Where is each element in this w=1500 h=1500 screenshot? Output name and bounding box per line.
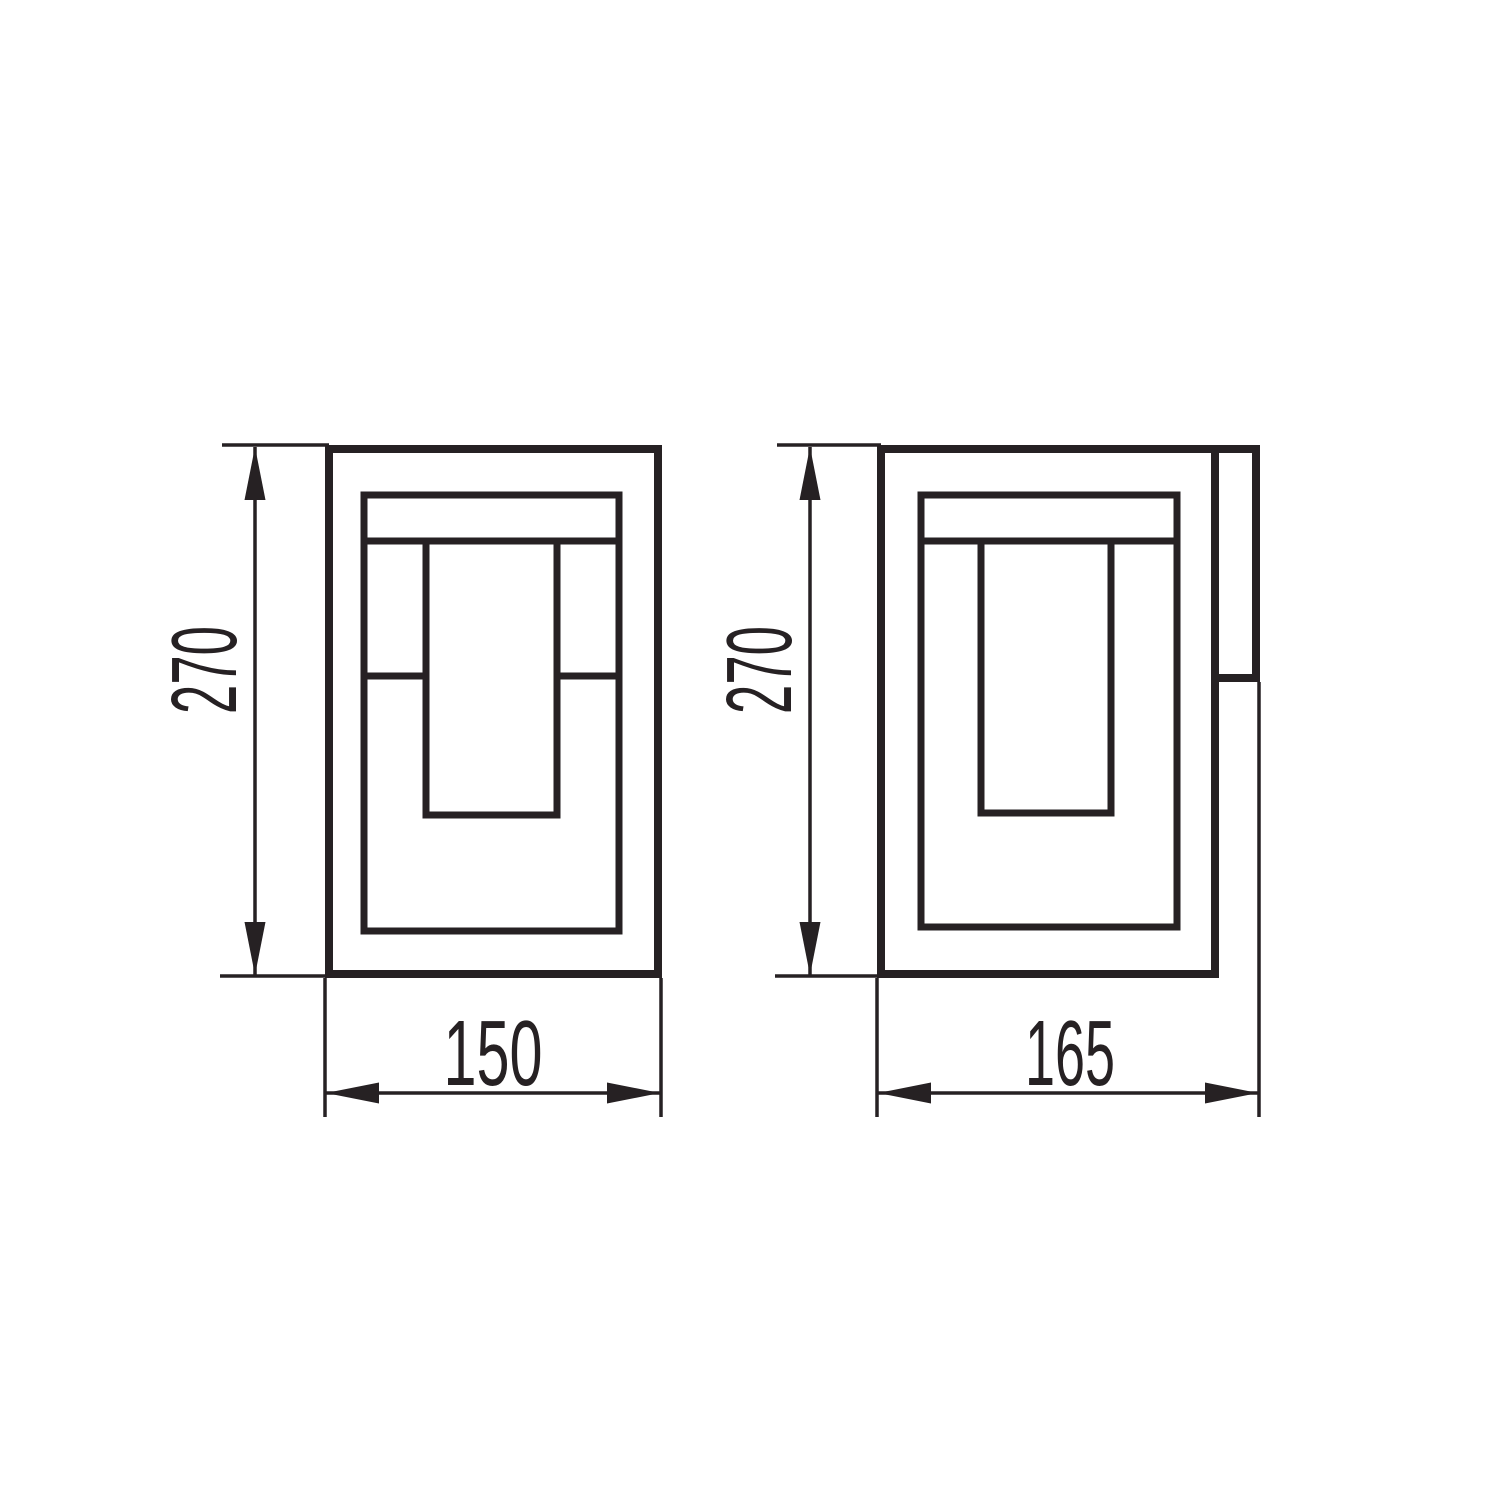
- front-outer-frame: [329, 449, 658, 974]
- side-lamp-chamber: [981, 541, 1111, 813]
- side-view: [881, 449, 1256, 974]
- side-outer-frame: [881, 449, 1215, 974]
- dimension-diagram: 270 150 270: [0, 0, 1500, 1500]
- side-height-dimension: 270: [707, 445, 886, 976]
- front-view: [329, 449, 658, 974]
- drawing-canvas: 270 150 270: [0, 0, 1500, 1500]
- side-inner-frame: [921, 495, 1177, 927]
- front-inner-frame: [364, 495, 619, 931]
- arrow-up-icon: [245, 447, 266, 500]
- arrow-down-icon: [800, 922, 821, 975]
- front-width-dimension-label: 150: [444, 1001, 543, 1105]
- side-width-dimension: 165: [877, 682, 1259, 1117]
- arrow-down-icon: [245, 922, 266, 975]
- front-height-dimension: 270: [152, 445, 331, 976]
- side-width-dimension-label: 165: [1025, 1001, 1115, 1105]
- front-lamp-chamber: [426, 541, 557, 815]
- side-height-dimension-label: 270: [707, 626, 811, 714]
- side-mount-bracket: [1215, 449, 1256, 678]
- front-height-dimension-label: 270: [152, 626, 256, 714]
- arrow-up-icon: [800, 447, 821, 500]
- arrow-right-icon: [607, 1083, 660, 1104]
- front-width-dimension: 150: [325, 978, 661, 1117]
- arrow-right-icon: [1205, 1083, 1258, 1104]
- arrow-left-icon: [878, 1083, 931, 1104]
- arrow-left-icon: [326, 1083, 379, 1104]
